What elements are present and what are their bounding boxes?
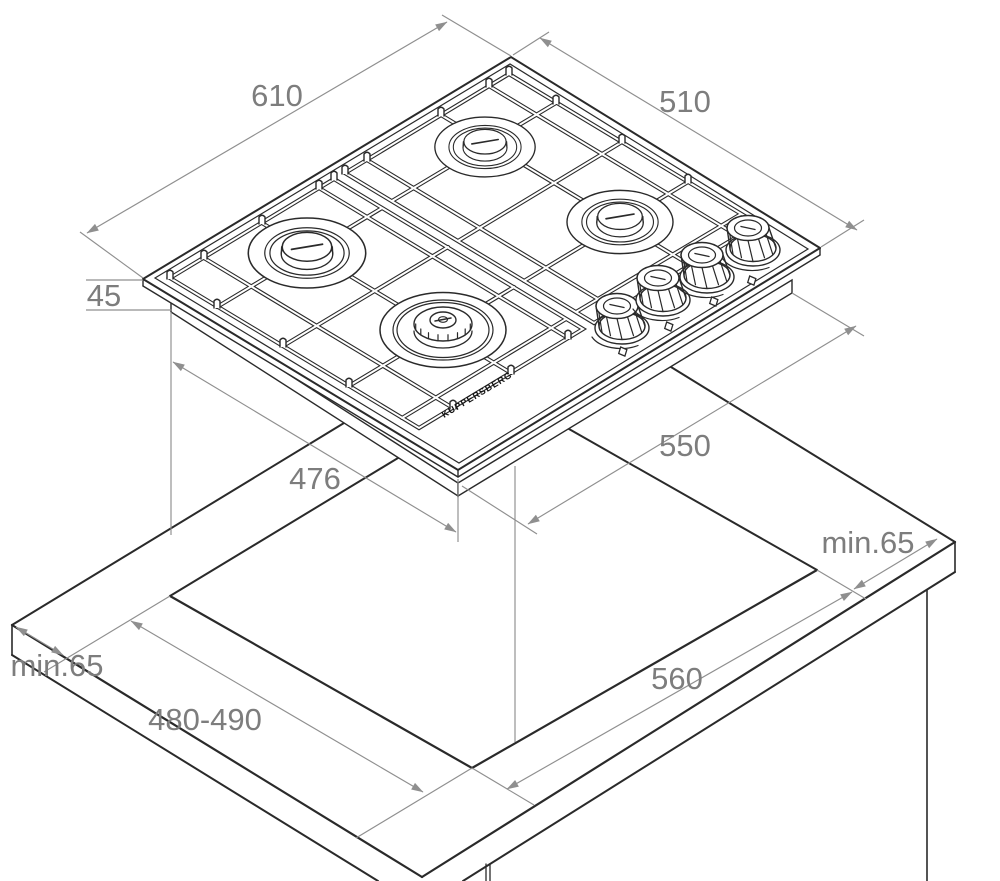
installation-diagram-page: KUPPERSBERG 610 510 45 476 550 min [0, 0, 1000, 881]
cooktop-drawing: KUPPERSBERG [143, 57, 820, 496]
dim-label-base-width: 550 [659, 428, 711, 463]
dim-label-cutout-depth: 480-490 [148, 702, 262, 737]
dim-label-hob-height: 45 [87, 278, 121, 313]
burner-right [567, 190, 673, 253]
dim-label-cutout-width: 560 [651, 661, 703, 696]
dim-label-hob-width: 610 [251, 78, 303, 113]
hob-installation-diagram: KUPPERSBERG 610 510 45 476 550 min [0, 0, 1000, 881]
dim-label-hob-depth: 510 [659, 84, 711, 119]
dim-label-clearance-right: min.65 [821, 525, 914, 560]
dim-label-base-depth: 476 [289, 461, 341, 496]
burner-back [435, 117, 535, 177]
burner-left [248, 218, 365, 288]
worktop-cutout [170, 429, 817, 768]
dim-label-clearance-left: min.65 [10, 648, 103, 683]
burner-wok [380, 293, 506, 368]
